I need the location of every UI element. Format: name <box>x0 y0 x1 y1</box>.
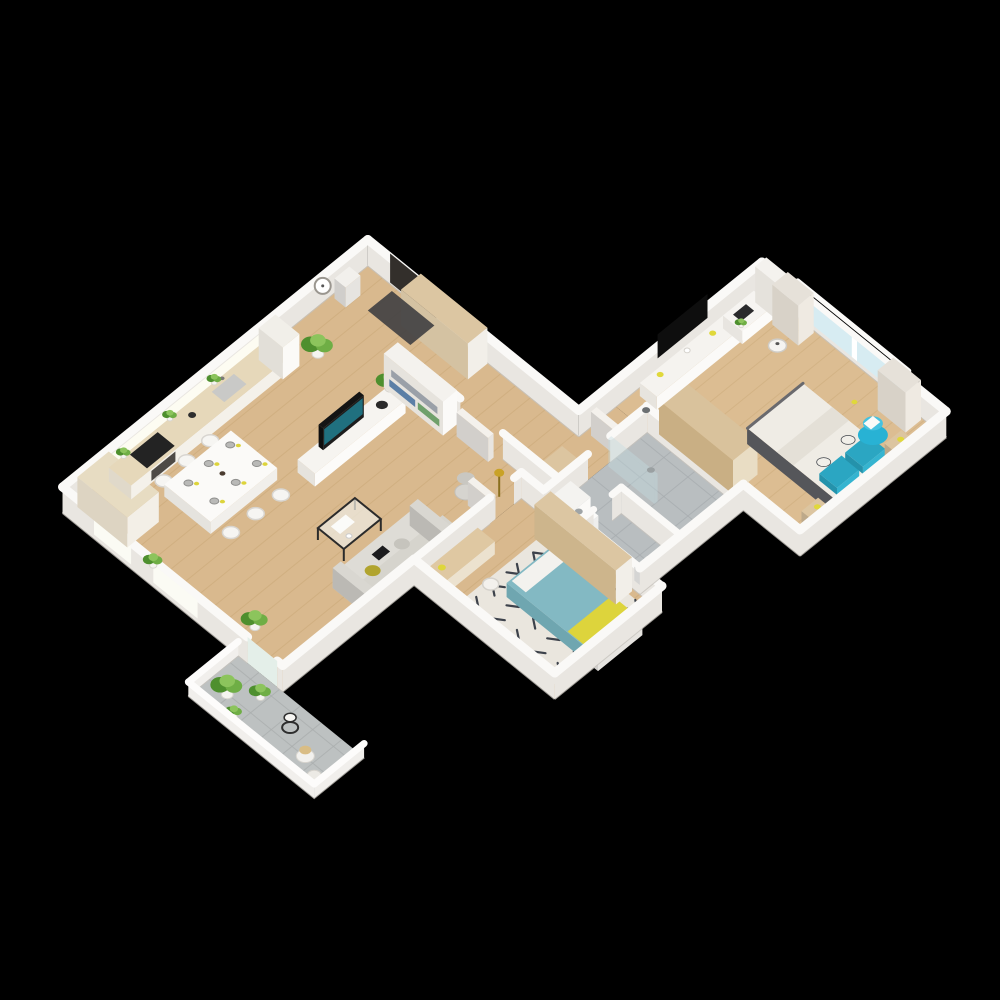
living-plant-west-leaf-2 <box>248 610 261 621</box>
sofa-pillow-olive <box>365 565 381 576</box>
dining-plant-west-leaf-2 <box>148 553 158 561</box>
floor-plan-canvas <box>0 0 1000 1000</box>
dining-chairs-3 <box>222 527 239 539</box>
master-pillow-pattern-1 <box>817 458 831 467</box>
dining-napkins-0 <box>194 482 199 486</box>
living-tv-side <box>319 425 324 451</box>
balcony-chair-seat <box>299 746 311 755</box>
master-floor-decor <box>851 400 857 404</box>
kids-chair <box>483 578 499 590</box>
sofa-pillow-gray <box>394 538 410 549</box>
dining-napkins-5 <box>262 462 267 466</box>
dining-plates-4 <box>231 479 240 485</box>
kids-desk-lamp <box>438 565 446 571</box>
dining-plates-2 <box>226 442 235 448</box>
kitchen-plant-corner-leaf-2 <box>310 334 326 346</box>
counter-plant-1-leaf-2 <box>120 447 127 453</box>
dining-chairs-4 <box>247 508 264 520</box>
dining-centerpiece <box>219 471 225 475</box>
sideboard-decor-1 <box>657 372 664 377</box>
balcony-plant-3-leaf-2 <box>230 705 238 712</box>
coffee-table-cup <box>346 534 352 538</box>
balcony-table-top <box>284 713 296 721</box>
living-door-leaf-front <box>488 434 494 463</box>
kitchen-kettle <box>188 412 196 418</box>
dining-plates-0 <box>184 480 193 486</box>
sideboard-decor-2 <box>709 331 716 336</box>
dining-napkins-4 <box>241 481 246 485</box>
shower-head <box>642 407 650 413</box>
shower-glass-front <box>655 474 658 504</box>
counter-plant-2-leaf-2 <box>166 410 173 416</box>
counter-plant-3-leaf-2 <box>211 374 218 380</box>
dining-chairs-5 <box>272 489 289 501</box>
floor-plan-render <box>0 0 1000 1000</box>
dining-plates-3 <box>210 498 219 504</box>
tv-speaker <box>376 401 388 409</box>
master-desk-plant-leaf-2 <box>738 318 744 323</box>
dining-plates-5 <box>252 461 261 467</box>
master-window-mullion <box>852 337 857 361</box>
shower-drain <box>647 467 655 473</box>
wall-clock-hub <box>321 284 324 287</box>
balcony-plant-1-leaf-2 <box>219 675 235 687</box>
sideboard-vase <box>684 348 690 353</box>
master-chair <box>768 339 786 352</box>
balcony-plant-2-leaf-2 <box>255 684 266 693</box>
dining-napkins-2 <box>236 444 241 448</box>
dining-napkins-1 <box>214 462 219 466</box>
master-chair-hub <box>775 342 779 345</box>
dining-plates-1 <box>204 461 213 467</box>
dining-napkins-3 <box>220 500 225 504</box>
master-pillow-pattern-2 <box>841 435 855 444</box>
floor-lamp-shade <box>494 469 504 477</box>
